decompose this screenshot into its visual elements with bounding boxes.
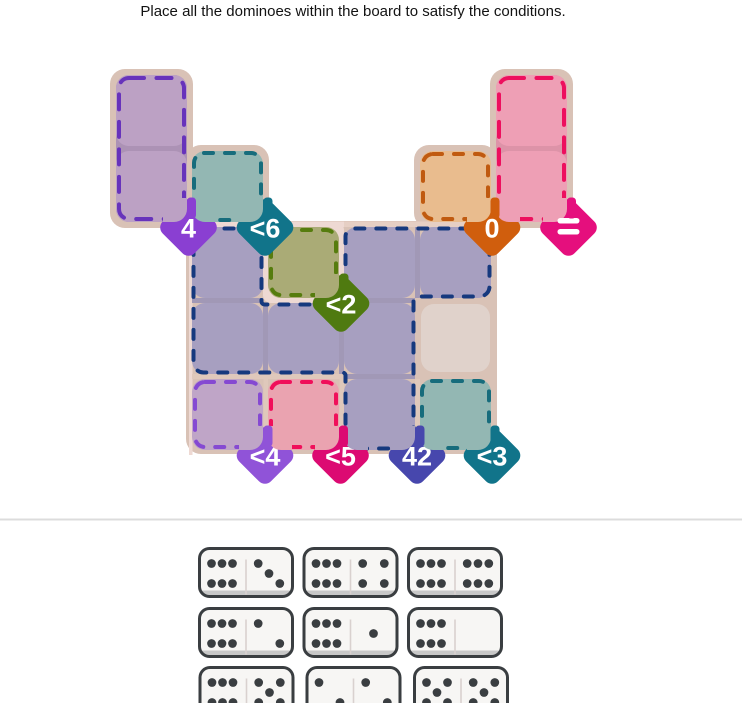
svg-text:<6: <6	[250, 214, 281, 244]
svg-text:<3: <3	[477, 442, 508, 472]
svg-text:Place all the dominoes within: Place all the dominoes within the board …	[140, 3, 565, 20]
svg-text:<2: <2	[326, 290, 357, 320]
